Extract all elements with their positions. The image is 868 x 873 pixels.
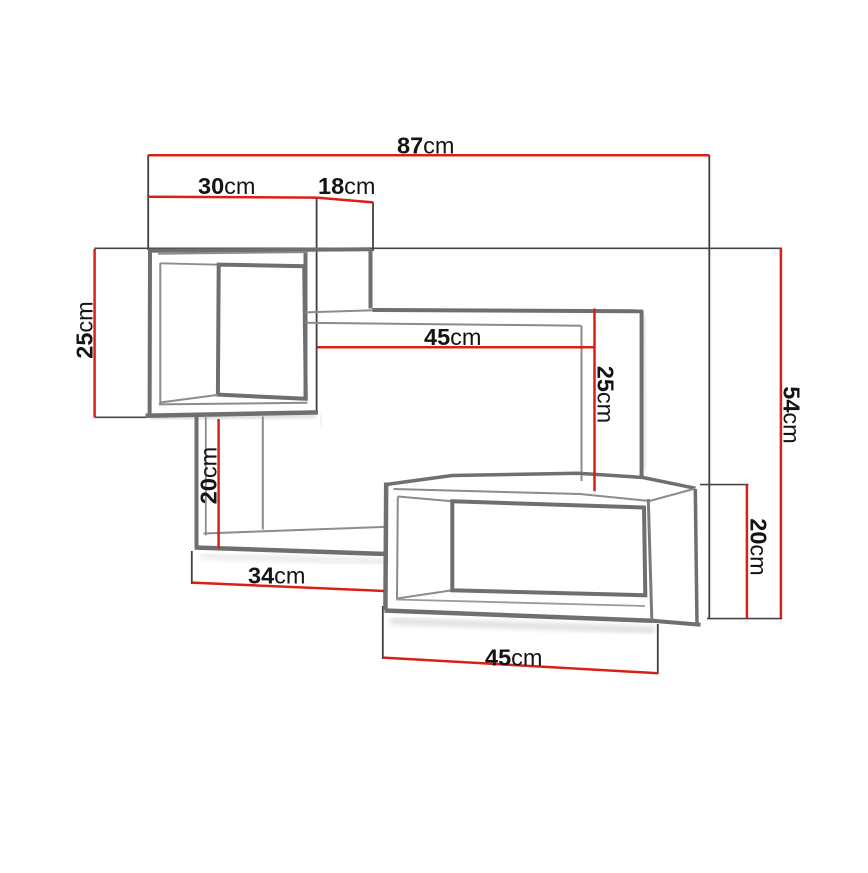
- svg-text:54cm: 54cm: [779, 386, 805, 443]
- svg-text:25cm: 25cm: [593, 366, 619, 423]
- svg-text:20cm: 20cm: [196, 447, 222, 504]
- svg-text:18cm: 18cm: [318, 173, 375, 199]
- svg-text:30cm: 30cm: [198, 173, 255, 199]
- svg-text:45cm: 45cm: [424, 324, 481, 350]
- svg-text:25cm: 25cm: [72, 301, 98, 358]
- svg-text:87cm: 87cm: [397, 132, 454, 158]
- svg-text:20cm: 20cm: [746, 518, 772, 575]
- svg-text:45cm: 45cm: [485, 645, 542, 671]
- svg-text:34cm: 34cm: [248, 562, 305, 588]
